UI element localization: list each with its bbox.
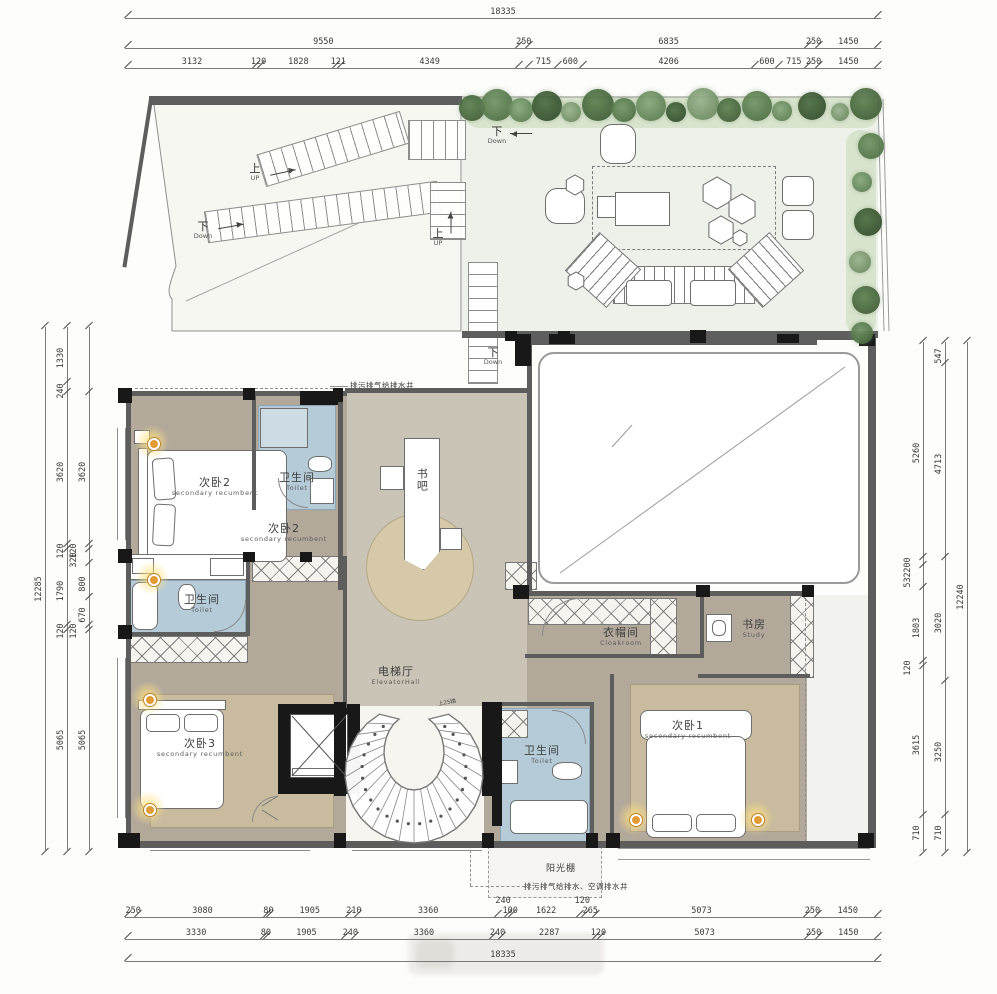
tree-icon [854,208,882,236]
column [126,833,140,848]
column [118,388,132,403]
tree-icon [772,101,792,121]
balcony-rail [618,848,870,860]
ceiling-light-icon [738,800,774,836]
tree-icon [851,322,873,344]
stair-up-en: UP [433,240,444,247]
dimension-value: 2287 [539,928,559,938]
annotation-bottom-well: 排污排气给排水、空调排水井 [524,881,628,892]
dimension-segment [78,330,94,396]
stair-down-zh: 下 [484,347,502,358]
room-label-toilet-bottom: 卫生间 Toilet [524,745,560,765]
dimension-segment: 3020 [934,561,950,685]
terrace-armchair [782,210,814,240]
room-label-en: secondary recumbent [172,490,258,497]
dimension-segment: 1450 [818,905,878,921]
room-label-en: Toilet [524,758,560,765]
dimension-value: 800 [78,576,88,591]
room-label-zh: 卫生间 [184,594,220,607]
room-label-zh: 次卧2 [241,523,327,536]
dimension-segment: 1450 [819,56,878,72]
wall [345,388,529,393]
dimension-segment: 18335 [128,6,878,22]
dimension-segment: 4713 [934,367,950,561]
stair-arrow [451,212,452,234]
side-table [380,466,404,490]
stair-down-en: Down [488,138,506,145]
ceiling-light-icon [134,560,170,596]
room-label-en: Cloakroom [600,640,642,647]
dimension-segment: 5073 [601,927,809,943]
dimension-segment: 1803 [912,591,928,665]
dimension-value: 9550 [313,37,333,47]
dimension-segment: 1450 [819,927,878,943]
wall [126,391,131,846]
dim-row-bottom-2: 33308019052403360240228712050732501450 [128,927,878,943]
room-label-elevator-hall: 电梯厅 ElevatorHall [371,666,420,686]
sink [210,558,244,576]
room-label-zh: 卫生间 [279,472,315,485]
tree-icon [612,98,636,122]
shower [260,408,308,448]
stair-label-down: 下 Down [194,221,212,240]
ceiling-light-icon [130,680,166,716]
tree-icon [852,172,872,192]
room-label-zh: 书房 [742,619,766,632]
column [802,585,814,597]
tree-icon [852,286,880,314]
column [492,702,502,826]
stair-label-down-hall: 下 Down [484,347,502,366]
column [333,388,343,402]
dimension-value: 1905 [296,928,316,938]
dimension-value: 1803 [912,618,922,638]
room-label-bedroom2-bed: 次卧2 secondary recumbent [172,477,258,497]
room-label-zh: 次卧2 [172,477,258,490]
stair-label-up-right: 上 UP [433,228,444,247]
dim-row-bottom-3: 18335 [128,949,878,965]
dimension-segment: 12240 [956,345,972,848]
dimension-value: 3330 [186,928,206,938]
dimension-segment: 6835 [529,36,809,52]
column [334,702,346,796]
column [558,331,570,341]
ceiling-light-icon [134,424,170,460]
dimension-value: 5065 [78,730,88,750]
stair-flight-upper [256,111,409,187]
stair-down-en: Down [194,233,212,240]
terrace-dashed-line [805,598,806,842]
wall [610,674,614,846]
dimension-value: 715 [786,57,801,67]
dim-row-top-3: 3132120182812143497156004206600715250145… [128,56,878,72]
wall [590,702,594,844]
dimension-segment: 600 [755,56,780,72]
wall [525,654,703,658]
window [117,428,126,540]
terrace-table [615,192,670,226]
dimension-segment: 3360 [355,927,492,943]
bed1-pillow [696,814,736,832]
column [690,330,706,343]
wall [698,674,810,678]
dimension-segment: 3620 [78,396,94,548]
room-label-zh: 电梯厅 [371,666,420,679]
dimension-segment: 5260 [912,345,928,561]
annotation-text: 排污排气给排水、空调排水井 [524,882,628,891]
tree-icon [717,98,741,122]
wall [700,594,704,658]
void-room-border [538,352,860,584]
dimension-value: 670 [78,607,88,622]
dimension-segment: 2287 [502,927,596,943]
wall [525,591,809,596]
dimension-value: 5073 [691,906,711,916]
room-label-sunroom: 阳光棚 [546,864,576,874]
dimension-value: 3020 [934,613,944,633]
dimension-value: 5260 [912,443,922,463]
wall [492,702,594,706]
room-label-en: Toilet [184,607,220,614]
terrace-armchair [782,176,814,206]
dimension-segment: 4206 [583,56,755,72]
wall [246,552,250,636]
room-label-bedroom1: 次卧1 secondary recumbent [645,720,731,740]
dimension-segment: 3080 [138,905,266,921]
room-label-cloakroom: 衣帽间 Cloakroom [600,627,642,647]
dimension-segment: 3360 [358,905,498,921]
room-label-zh: 衣帽间 [600,627,642,640]
column [513,585,529,599]
column [515,334,531,366]
stair-up-zh: 上 [250,163,261,174]
dimension-segment: 3250 [934,685,950,819]
tree-icon [532,91,562,121]
room-label-en: secondary recumbent [241,536,327,543]
dimension-value: 1330 [56,348,66,368]
tree-icon [742,91,772,121]
dim-col-right-outer: 12240 [956,345,972,848]
dimension-value: 3360 [414,928,434,938]
bed3-pillow [184,714,218,732]
dimension-value: 3080 [192,906,212,916]
column [482,833,494,848]
dimension-value: 3132 [182,57,202,67]
sofa-cushion [690,280,736,306]
side-table [440,528,462,550]
dimension-value: 3360 [418,906,438,916]
dimension-segment: 715 [779,56,808,72]
tree-icon [481,89,513,121]
book-bar-desk [404,438,440,570]
dimension-segment: 3620 [56,396,72,548]
dimension-value: 18335 [490,7,516,17]
dimension-segment: 1905 [270,905,349,921]
dimension-value: 1450 [838,906,858,916]
dimension-value: 1622 [536,906,556,916]
dim-col-left-inner: 36201203208006701205065 [78,330,94,847]
stair-arrow [510,133,532,134]
bed1-pillow [652,814,692,832]
column [243,388,255,400]
dimension-value: 600 [563,57,578,67]
dimension-segment: 5065 [78,634,94,847]
dimension-value: 3615 [912,734,922,754]
vanity [500,760,518,784]
dimension-value: 710 [912,826,922,841]
dimension-segment: 3330 [128,927,264,943]
bed2-pillow [152,503,176,546]
room-label-study: 书房 Study [742,619,766,639]
column [696,585,710,597]
dimension-value: 4713 [934,454,944,474]
column [858,833,874,848]
dimension-segment: 5073 [596,905,807,921]
room-label-bedroom2: 次卧2 secondary recumbent [241,523,327,543]
dimension-segment: 715 [529,56,558,72]
dimension-segment: 5065 [56,634,72,847]
cloakroom-hatch-side [650,598,677,656]
dimension-value: 12240 [956,584,966,610]
bed3-pillow [146,714,180,732]
dimension-value: 5073 [694,928,714,938]
column [505,331,517,341]
dimension-value: 1450 [838,57,858,67]
dimension-value: 4206 [658,57,678,67]
terrace-chair [545,188,585,224]
wall [126,841,874,848]
dimension-value: 715 [536,57,551,67]
stair-down-zh: 下 [194,221,212,232]
wall [252,396,256,510]
leader-dashed [470,886,525,887]
room-label-zh: 次卧3 [157,738,243,751]
dimension-segment: 800 [78,567,94,601]
wall [343,556,347,708]
column [334,833,346,848]
ceiling-light-icon [130,790,166,826]
dim-col-left-outer: 12285 [34,330,50,847]
room-label-en: ElevatorHall [371,679,420,686]
dimension-value: 1828 [288,57,308,67]
dimension-value: 3620 [56,462,66,482]
dimension-value: 5065 [56,730,66,750]
dimension-value: 710 [934,826,944,841]
dimension-value: 1790 [56,581,66,601]
room-label-en: Toilet [279,485,315,492]
toilet-bottom-shower-hatch [500,710,528,738]
ceiling-light-icon [616,800,652,836]
dimension-segment: 1905 [267,927,345,943]
dimension-value: 532 [903,573,913,588]
dimension-segment: 1828 [261,56,336,72]
tree-icon [850,88,882,120]
wc [308,456,332,472]
dimension-segment: 1622 [512,905,580,921]
dimension-segment: 12285 [34,330,50,847]
wall [149,96,462,105]
tree-icon [798,92,826,120]
room-label-toilet-left: 卫生间 Toilet [184,594,220,614]
stair-flight-lower [204,181,441,243]
right-side-strip [807,595,872,845]
sofa-cushion [626,280,672,306]
stair-down-en: Down [484,359,502,366]
dimension-value: 18335 [490,950,516,960]
dim-col-left-mid: 1330240362012017901205065 [56,330,72,847]
room-label-en: secondary recumbent [645,733,731,740]
leader-line [330,386,348,387]
room-label-toilet-top: 卫生间 Toilet [279,472,315,492]
room-label-book-bar: 书吧 [415,468,428,492]
stair-up-zh: 上 [433,228,444,239]
room-label-en: Study [742,632,766,639]
stair-landing-top [408,120,466,160]
room-label-zh: 书吧 [415,468,428,492]
dimension-segment: 710 [912,819,928,848]
room-label-zh: 阳光棚 [546,864,576,874]
column [243,552,255,562]
dimension-segment: 3132 [128,56,256,72]
wall [527,345,532,595]
tree-icon [687,88,719,120]
dimension-value: 320 [69,553,79,568]
dimension-value: 6835 [658,37,678,47]
column [300,552,312,562]
room-label-bedroom3: 次卧3 secondary recumbent [157,738,243,758]
tree-icon [509,98,533,122]
tree-icon [858,133,884,159]
dimension-segment: 9550 [128,36,519,52]
dimension-segment: 600 [558,56,583,72]
dim-row-bottom-1: 2503080801905210336024010016221202655073… [128,905,878,921]
stair-label-down-terrace: 下 Down [488,126,506,145]
dimension-segment: 1450 [819,36,878,52]
tree-icon [582,89,614,121]
room-label-en: secondary recumbent [157,751,243,758]
dimension-segment: 18335 [128,949,878,965]
column [118,625,132,639]
dimension-value: 547 [934,349,944,364]
room-label-zh: 次卧1 [645,720,731,733]
column [586,833,598,848]
dimension-segment: 3615 [912,670,928,819]
spiral-stair-room [346,706,484,842]
wall [122,99,153,268]
roof-dashed-line [135,388,343,389]
tree-icon [831,103,849,121]
wardrobe-hatch [128,636,248,663]
leader-dashed [470,850,471,886]
window [117,658,126,818]
dim-row-top-2: 955025068352501450 [128,36,878,52]
tree-icon [561,102,581,122]
bathtub [510,800,588,834]
terrace-chair [600,124,636,164]
stair-down-zh: 下 [488,126,506,137]
wall [352,843,492,848]
column [118,549,132,563]
tree-icon [849,251,871,273]
dim-col-right-mid: 547471330203250710 [934,345,950,848]
stair-label-up: 上 UP [250,163,261,182]
dimension-value: 1450 [838,928,858,938]
dimension-segment: 710 [934,819,950,848]
dimension-value: 1905 [299,906,319,916]
dimension-value: 12285 [34,576,44,602]
tree-icon [666,102,686,122]
dimension-value: 1450 [838,37,858,47]
study-hatch [790,592,814,678]
stair-up-en: UP [250,175,261,182]
dimension-segment: 4349 [341,56,519,72]
tree-icon [636,91,666,121]
dimension-value: 4349 [419,57,439,67]
study-chair [712,620,726,636]
room-label-zh: 卫生间 [524,745,560,758]
column [777,334,799,343]
dimension-value: 3250 [934,742,944,762]
dim-row-top-1: 18335 [128,6,878,22]
dimension-value: 3620 [78,462,88,482]
floor-plan-canvas: 次卧2 secondary recumbent 次卧2 secondary re… [0,0,997,994]
dim-col-right-inner: 526020053218031203615710 [912,345,928,848]
wall [126,632,250,636]
dimension-value: 600 [759,57,774,67]
wall [868,337,876,848]
